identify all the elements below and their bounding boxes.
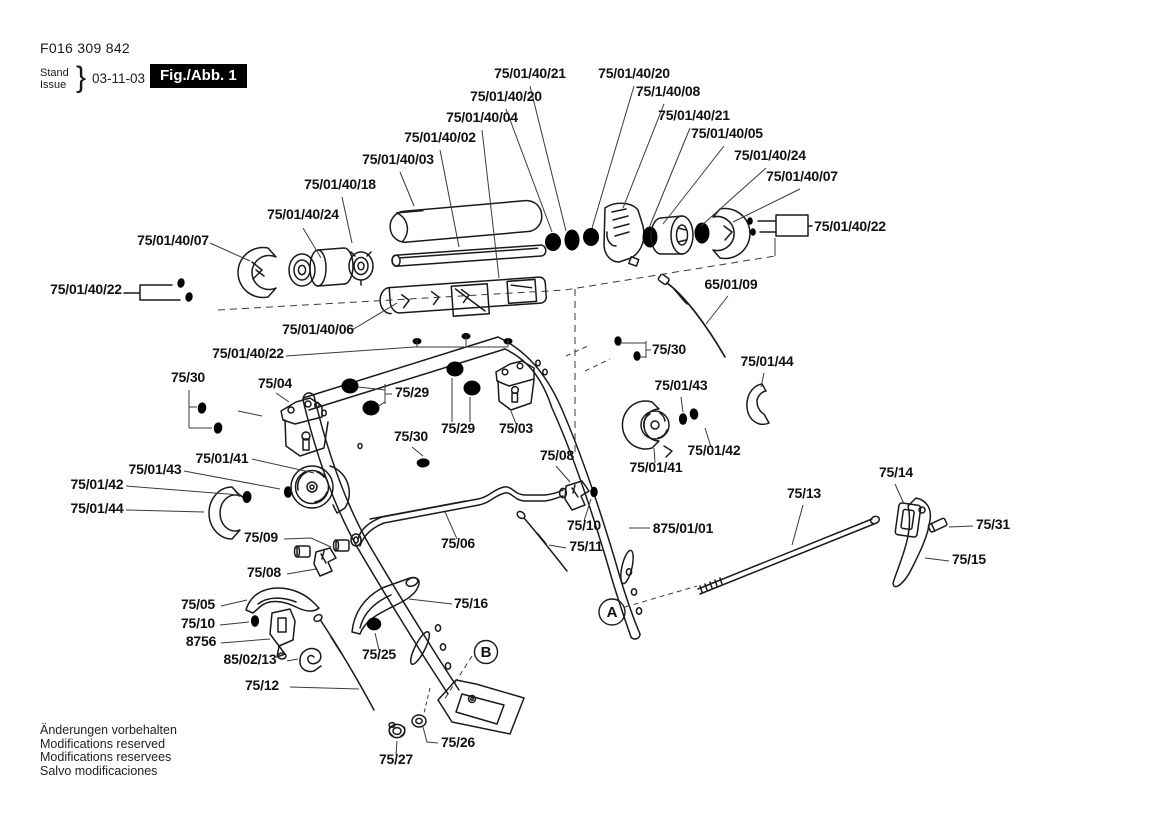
part-label-75-29-a: 75/29 <box>395 384 429 400</box>
part-label-75-01-40-22-a: 75/01/40/22 <box>814 218 886 234</box>
part-label-75-01-40-24-a: 75/01/40/24 <box>734 147 806 163</box>
clip-85-02-13 <box>300 649 321 672</box>
part-labels: 75/01/40/21 75/01/40/20 75/01/40/20 75/1… <box>50 65 1010 767</box>
part-label-75-08-a: 75/08 <box>540 447 574 463</box>
part-label-75-08-b: 75/08 <box>247 564 281 580</box>
callout-b: B <box>475 641 498 664</box>
part-label-75-01-42-b: 75/01/42 <box>71 476 124 492</box>
part-label-75-26: 75/26 <box>441 734 475 750</box>
part-label-75-27: 75/27 <box>379 751 413 767</box>
part-label-75-29-b: 75/29 <box>441 420 475 436</box>
part-label-75-30-c: 75/30 <box>394 428 428 444</box>
part-label-75-01-44-a: 75/01/44 <box>741 353 794 369</box>
part-label-75-01-41-b: 75/01/41 <box>196 450 249 466</box>
parts-diagram-page: F016 309 842 Stand Issue } 03-11-03 Fig.… <box>0 0 1168 825</box>
part-label-75-01-40-22-b: 75/01/40/22 <box>50 281 122 297</box>
part-label-75-01-40-20-a: 75/01/40/20 <box>598 65 670 81</box>
part-label-75-12: 75/12 <box>245 677 279 693</box>
clamp-75-03 <box>496 361 534 410</box>
part-label-85-02-13: 85/02/13 <box>224 651 277 667</box>
part-label-75-01-40-05: 75/01/40/05 <box>691 125 763 141</box>
nut-75-27-washer-75-26 <box>389 715 426 738</box>
part-label-75-09: 75/09 <box>244 529 278 545</box>
callout-a: A <box>599 599 625 625</box>
part-label-75-11: 75/11 <box>569 538 603 554</box>
clamp-75-08-mid <box>565 481 598 510</box>
part-label-75-01-40-24-b: 75/01/40/24 <box>267 206 339 222</box>
part-label-75-01-42-a: 75/01/42 <box>688 442 741 458</box>
callout-a-letter: A <box>607 604 618 621</box>
part-label-75-01-40-22-c: 75/01/40/22 <box>212 345 284 361</box>
part-label-75-15: 75/15 <box>952 551 986 567</box>
trigger-75-14-15 <box>893 498 947 587</box>
left-pivot-cluster <box>209 466 349 539</box>
part-label-75-04: 75/04 <box>258 375 292 391</box>
part-label-8756: 8756 <box>186 633 217 649</box>
part-label-75-01-40-04: 75/01/40/04 <box>446 109 518 125</box>
part-label-75-25: 75/25 <box>362 646 396 662</box>
part-label-75-01-40-21-b: 75/01/40/21 <box>658 107 730 123</box>
part-label-75-05: 75/05 <box>181 596 215 612</box>
callout-b-letter: B <box>481 644 492 661</box>
part-label-75-10-b: 75/10 <box>181 615 215 631</box>
part-label-75-14: 75/14 <box>879 464 913 480</box>
part-label-75-13: 75/13 <box>787 485 821 501</box>
part-label-75-06: 75/06 <box>441 535 475 551</box>
part-label-875-01-01: 875/01/01 <box>653 520 714 536</box>
roller-cover-assembly <box>379 199 547 344</box>
part-label-75-01-44-b: 75/01/44 <box>71 500 124 516</box>
part-label-75-01-43-b: 75/01/43 <box>129 461 182 477</box>
part-label-75-31: 75/31 <box>976 516 1010 532</box>
part-label-65-01-09: 65/01/09 <box>705 276 758 292</box>
part-label-75-01-41-a: 75/01/41 <box>630 459 683 475</box>
part-label-75-01-40-21-a: 75/01/40/21 <box>494 65 566 81</box>
left-mount-screws <box>124 278 216 308</box>
part-label-75-03: 75/03 <box>499 420 533 436</box>
part-label-75-01-40-07-a: 75/01/40/07 <box>766 168 838 184</box>
part-label-75-01-40-06: 75/01/40/06 <box>282 321 354 337</box>
part-label-75-30-a: 75/30 <box>171 369 205 385</box>
part-label-75-01-40-18: 75/01/40/18 <box>304 176 376 192</box>
left-end-cap-and-bearings <box>238 248 373 298</box>
bracket-75-16 <box>352 576 419 634</box>
part-label-75-01-40-07-b: 75/01/40/07 <box>137 232 209 248</box>
part-label-75-01-40-20-b: 75/01/40/20 <box>470 88 542 104</box>
part-label-75-16: 75/16 <box>454 595 488 611</box>
rod-75-13 <box>698 515 880 594</box>
exploded-diagram: A B 75/01/40/21 75/01/40/20 75/01/40/20 … <box>0 0 1168 825</box>
part-label-75-01-43-a: 75/01/43 <box>655 377 708 393</box>
part-label-75-01-40-03: 75/01/40/03 <box>362 151 434 167</box>
part-label-75-30-b: 75/30 <box>652 341 686 357</box>
part-label-75-01-40-02: 75/01/40/02 <box>404 129 476 145</box>
part-label-75-10-a: 75/10 <box>567 517 601 533</box>
cable-75-11 <box>516 510 567 571</box>
part-label-75-1-40-08: 75/1/40/08 <box>636 83 701 99</box>
bushings-75-09 <box>295 534 362 576</box>
